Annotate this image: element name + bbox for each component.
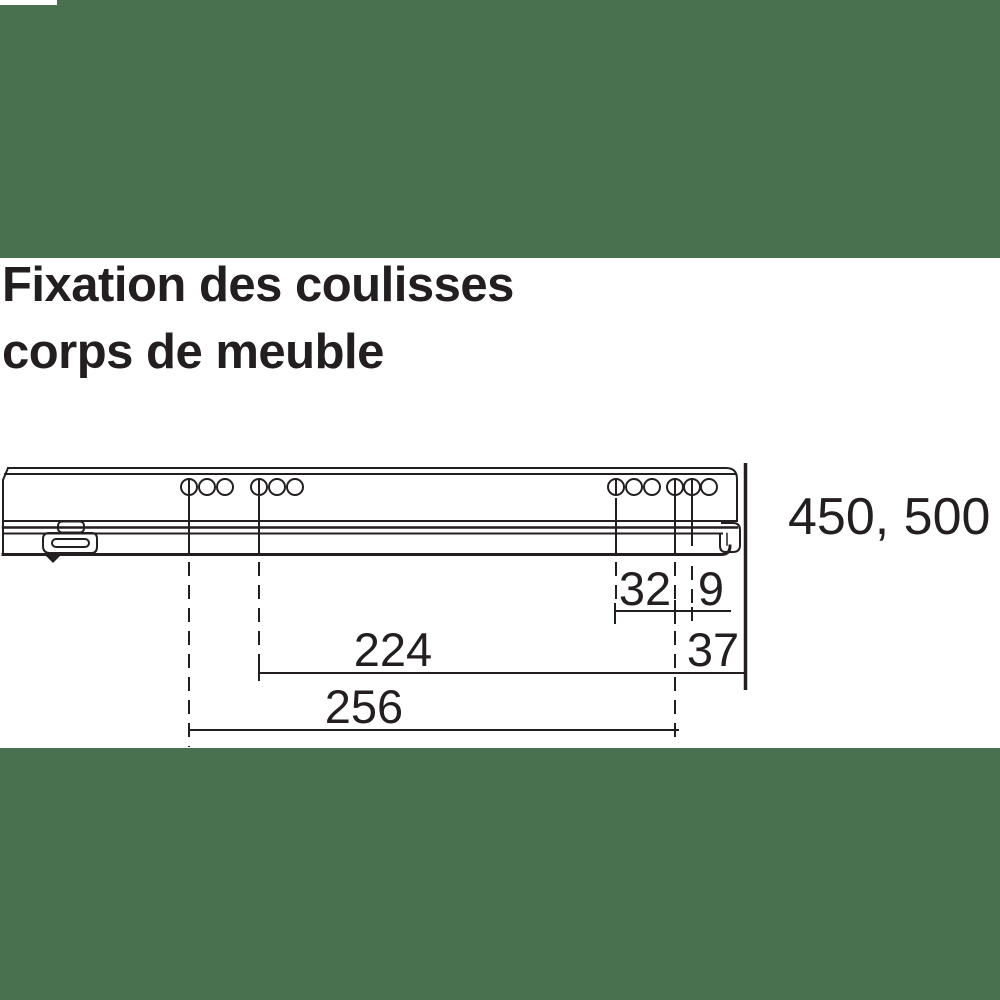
page-title: Fixation des coulisses corps de meuble: [2, 252, 514, 386]
top-left-white-notch: [0, 0, 57, 5]
page-title-line2: corps de meuble: [2, 319, 514, 386]
page-title-line1: Fixation des coulisses: [2, 252, 514, 319]
